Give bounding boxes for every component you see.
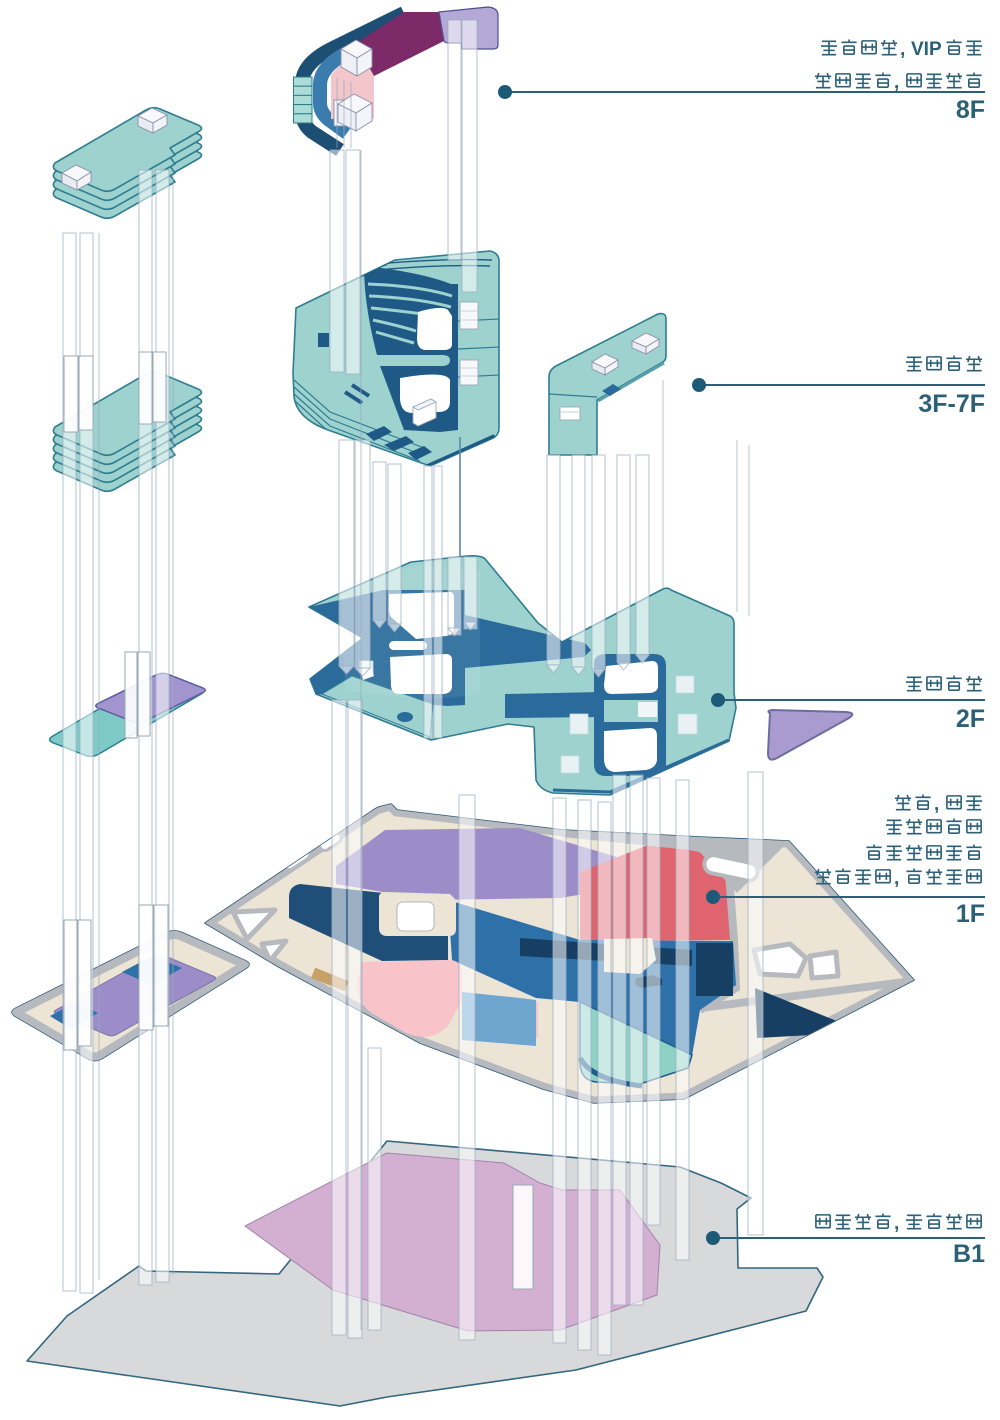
svg-text:VIP: VIP [911,39,942,60]
svg-text:,: , [900,39,905,60]
svg-text:3F-7F: 3F-7F [918,390,985,418]
svg-text:2F: 2F [956,705,985,733]
svg-text:,: , [894,1213,899,1234]
svg-text:B1: B1 [953,1240,985,1268]
svg-text:,: , [894,72,899,93]
svg-text:,: , [894,868,899,889]
svg-text:1F: 1F [956,900,985,928]
svg-text:8F: 8F [956,96,985,124]
svg-text:,: , [934,794,939,815]
